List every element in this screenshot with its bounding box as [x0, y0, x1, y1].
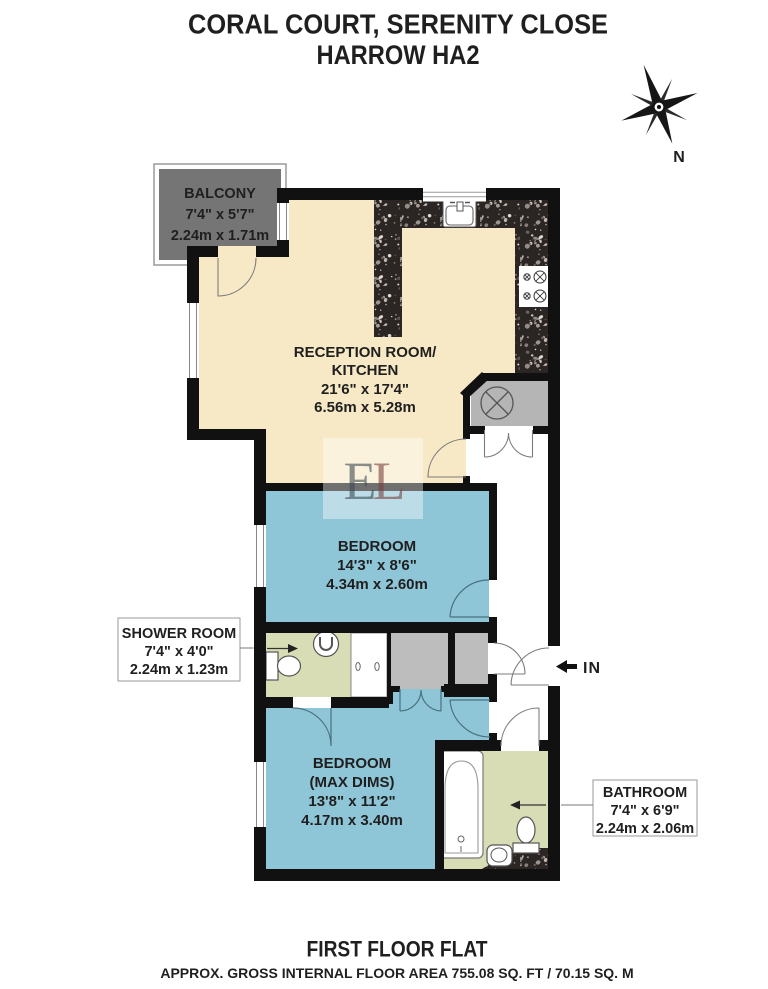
svg-text:KITCHEN: KITCHEN [332, 362, 399, 379]
svg-text:BEDROOM: BEDROOM [313, 755, 391, 772]
svg-text:4.34m x 2.60m: 4.34m x 2.60m [326, 576, 428, 593]
svg-text:14'3" x 8'6": 14'3" x 8'6" [337, 557, 417, 574]
svg-text:(MAX DIMS): (MAX DIMS) [310, 774, 395, 791]
svg-text:SHOWER ROOM: SHOWER ROOM [122, 626, 236, 642]
svg-text:BATHROOM: BATHROOM [603, 785, 687, 801]
svg-text:HARROW HA2: HARROW HA2 [317, 40, 480, 70]
svg-text:BEDROOM: BEDROOM [338, 538, 416, 555]
svg-text:6.56m x 5.28m: 6.56m x 5.28m [314, 399, 416, 416]
svg-text:2.24m x 2.06m: 2.24m x 2.06m [596, 821, 694, 837]
svg-text:7'4" x 4'0": 7'4" x 4'0" [144, 644, 213, 660]
svg-text:L: L [373, 451, 406, 511]
svg-text:2.24m x 1.23m: 2.24m x 1.23m [130, 662, 228, 678]
svg-text:2.24m x 1.71m: 2.24m x 1.71m [171, 228, 269, 244]
svg-text:IN: IN [583, 660, 601, 677]
svg-text:BALCONY: BALCONY [184, 186, 256, 202]
svg-text:N: N [673, 149, 685, 166]
svg-text:7'4" x 5'7": 7'4" x 5'7" [185, 207, 254, 223]
svg-text:RECEPTION ROOM/: RECEPTION ROOM/ [294, 344, 437, 361]
svg-text:4.17m x 3.40m: 4.17m x 3.40m [301, 812, 403, 829]
svg-text:APPROX. GROSS INTERNAL FLOOR A: APPROX. GROSS INTERNAL FLOOR AREA 755.08… [160, 965, 633, 981]
svg-text:CORAL COURT, SERENITY CLOSE: CORAL COURT, SERENITY CLOSE [188, 9, 608, 40]
svg-text:FIRST FLOOR FLAT: FIRST FLOOR FLAT [307, 937, 488, 962]
svg-text:21'6" x 17'4": 21'6" x 17'4" [321, 381, 409, 398]
svg-text:13'8" x 11'2": 13'8" x 11'2" [308, 793, 395, 810]
svg-text:7'4" x 6'9": 7'4" x 6'9" [610, 803, 679, 819]
